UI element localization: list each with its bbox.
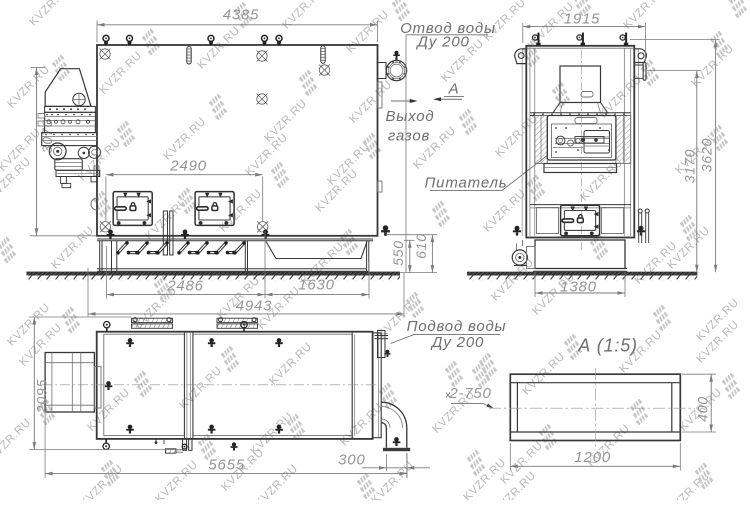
svg-text:KVZR.RU: KVZR.RU [27,0,74,29]
svg-text:KVZR.RU: KVZR.RU [0,416,34,463]
svg-text:газов: газов [388,128,430,145]
svg-text:KVZR.RU: KVZR.RU [97,49,144,96]
svg-text:2-750: 2-750 [448,385,491,402]
svg-text:KVZR.RU: KVZR.RU [195,24,242,71]
svg-text:550: 550 [390,240,406,266]
svg-text:400: 400 [695,396,711,422]
svg-text:Ду 200: Ду 200 [430,334,484,351]
svg-text:KVZR.RU: KVZR.RU [493,112,540,159]
svg-text:KVZR.RU: KVZR.RU [369,459,416,500]
svg-text:1380: 1380 [560,279,597,296]
svg-text:KVZR.RU: KVZR.RU [248,410,295,457]
svg-text:Подвод воды: Подвод воды [407,318,507,335]
svg-text:KVZR.RU: KVZR.RU [344,8,391,55]
svg-text:2486: 2486 [166,278,204,295]
svg-text:KVZR.RU: KVZR.RU [597,73,644,120]
svg-text:1630: 1630 [298,277,335,294]
svg-text:610: 610 [413,233,429,259]
svg-text:KVZR.RU: KVZR.RU [85,386,132,433]
svg-text:KVZR.RU: KVZR.RU [49,224,96,271]
svg-text:4943: 4943 [236,298,273,315]
svg-text:4385: 4385 [223,7,260,24]
svg-text:Выход: Выход [385,108,434,125]
svg-text:300: 300 [338,452,365,469]
svg-text:А: А [448,81,460,98]
svg-text:5655: 5655 [208,456,245,473]
svg-text:KVZR.RU: KVZR.RU [153,458,200,500]
svg-text:KVZR.RU: KVZR.RU [253,462,300,500]
svg-text:Ду 200: Ду 200 [415,34,469,51]
svg-text:3170: 3170 [682,149,698,183]
svg-text:KVZR.RU: KVZR.RU [161,115,208,162]
svg-text:1915: 1915 [564,11,601,28]
svg-text:KVZR.RU: KVZR.RU [280,0,327,32]
svg-text:Питатель: Питатель [425,175,508,192]
svg-text:2490: 2490 [169,158,207,175]
svg-text:KVZR.RU: KVZR.RU [267,340,314,387]
svg-text:3620: 3620 [699,138,715,172]
svg-text:2095: 2095 [34,379,50,414]
svg-text:KVZR.RU: KVZR.RU [481,187,528,234]
svg-text:1200: 1200 [574,449,611,466]
svg-text:А (1:5): А (1:5) [577,335,638,355]
